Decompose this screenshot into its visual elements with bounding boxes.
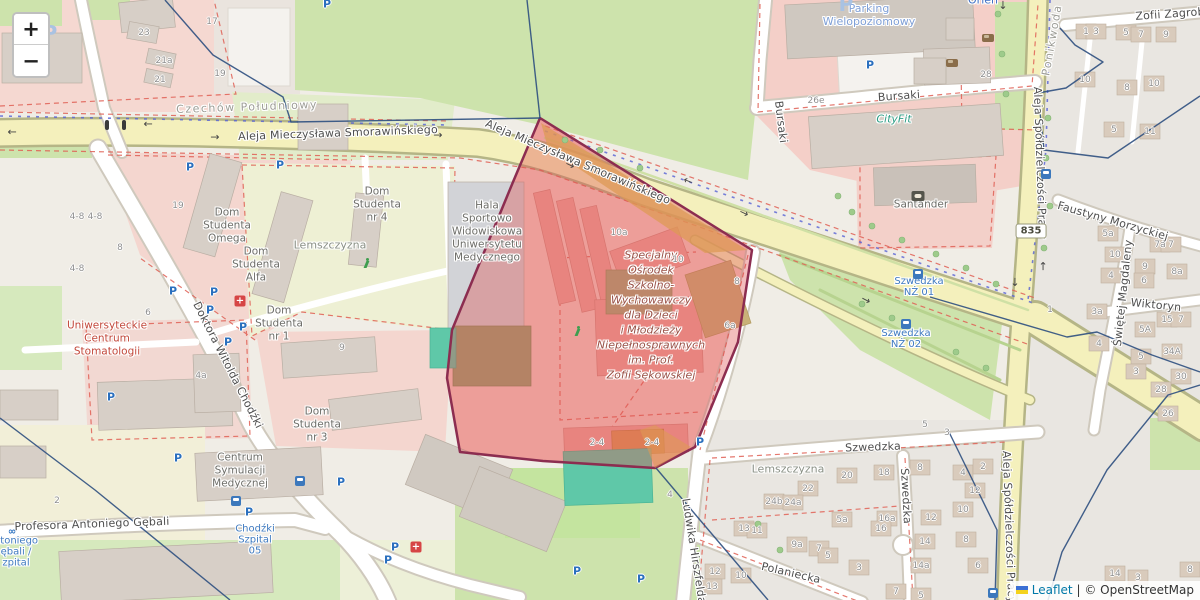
place-label-line: Parking xyxy=(849,2,890,15)
attribution-bar: Leaflet | © OpenStreetMap xyxy=(1010,581,1200,600)
street-label: Profesora Antoniego Gębali xyxy=(14,515,170,533)
house-number: 16a xyxy=(879,514,896,524)
place-label-line: nr 1 xyxy=(269,331,290,344)
house-number: 3 xyxy=(944,428,950,438)
house-number: 4 xyxy=(1108,271,1114,281)
place-label: DomStudentanr 3 xyxy=(293,406,341,445)
bus-stop-label-line: Szwedzka xyxy=(881,328,930,339)
house-number: 8 xyxy=(963,535,969,545)
house-number: 2 xyxy=(980,462,986,472)
parking-icon: P xyxy=(866,59,874,72)
house-number: 12 xyxy=(969,486,980,496)
parking-icon: P xyxy=(337,476,345,489)
house-number: 20 xyxy=(841,471,852,481)
arrow-icon: → xyxy=(210,132,219,143)
house-number: 28 xyxy=(980,70,991,80)
house-number: 13 xyxy=(706,582,717,592)
house-number: 15 xyxy=(1161,315,1172,325)
house-number: 28 xyxy=(1155,385,1166,395)
osm-link[interactable]: © OpenStreetMap xyxy=(1084,583,1194,597)
arrow-icon: → xyxy=(7,127,16,138)
place-label: DomStudentaAlfa xyxy=(232,246,280,285)
bus-stop-label-line: 05 xyxy=(249,546,262,557)
house-number: 7 xyxy=(893,587,899,597)
bus-stop-label-line: Szpital xyxy=(238,535,272,546)
house-number: 14 xyxy=(919,537,930,547)
house-number: 21a xyxy=(156,56,173,66)
arrow-icon: → xyxy=(737,206,750,220)
place-label: HalaSportowoWidowiskowaUniwersytetuMedyc… xyxy=(452,200,522,265)
place-label: Lemszczyzna xyxy=(294,239,367,252)
parking-icon: P xyxy=(210,286,218,299)
parking-icon: P xyxy=(276,159,284,172)
street-label: Wiktoryn xyxy=(1130,296,1182,314)
bus-stop-label-line: zpital xyxy=(2,558,29,569)
bus-icon xyxy=(988,588,998,598)
house-number: 26 xyxy=(1162,409,1173,419)
bus-stop-label: SzwedzkaNŻ 02 xyxy=(881,328,930,350)
street-label: Zofii Zagrob xyxy=(1135,5,1200,23)
place-label: DomStudentanr 4 xyxy=(353,186,401,225)
house-number: 24b xyxy=(765,497,782,507)
parking-icon: P xyxy=(224,336,232,349)
house-number: 10 xyxy=(735,571,746,581)
house-number: 34A xyxy=(1163,347,1181,357)
place-label-line: Sportowo xyxy=(462,213,512,226)
place-label: ParkingWielopoziomowy xyxy=(823,2,915,28)
house-number: 5 xyxy=(1138,352,1144,362)
house-number: 6 xyxy=(1141,276,1147,286)
parking-icon: P xyxy=(384,554,392,567)
house-number: 8 xyxy=(1187,565,1193,575)
house-number: 4a xyxy=(195,371,206,381)
arrow-icon: → xyxy=(998,0,1009,9)
place-label-line: Ośrodek xyxy=(628,263,674,278)
place-label-line: Studenta xyxy=(255,318,303,331)
place-label: Orlen xyxy=(968,0,998,7)
house-number: 2-4 xyxy=(645,438,660,448)
street-label: Bursaki xyxy=(772,100,790,144)
place-label-line: CityFit xyxy=(876,113,911,126)
attribution-separator: | xyxy=(1076,583,1080,597)
parking-icon: P xyxy=(573,565,581,578)
house-number: 7 xyxy=(1168,240,1174,250)
arrow-icon: → xyxy=(433,130,442,141)
house-number: 9 xyxy=(1163,30,1169,40)
house-number: 3 xyxy=(1133,367,1139,377)
place-label: SpecjalnyOśrodekSzkolno-Wychowawczydla D… xyxy=(597,248,705,383)
place-label-line: Symulacji xyxy=(215,465,266,478)
place-label-line: Lemszczyzna xyxy=(294,239,367,252)
house-number: 9 xyxy=(339,343,345,353)
zoom-control: + − xyxy=(12,12,50,78)
place-label-line: Omega xyxy=(208,233,246,246)
house-number: 10 xyxy=(957,505,968,515)
street-label: Aleja Mieczysława Smorawińskiego xyxy=(483,117,672,207)
house-number: 3a xyxy=(1091,307,1102,317)
bus-icon xyxy=(901,319,911,329)
atm-icon xyxy=(912,191,925,201)
bicycle-icon: ∞ xyxy=(8,527,16,538)
place-label-line: Uniwersytetu xyxy=(452,239,522,252)
car-icon xyxy=(946,59,958,67)
house-number: 6 xyxy=(975,561,981,571)
house-number: 6a xyxy=(724,321,735,331)
house-number: 12 xyxy=(925,513,936,523)
house-number: 1 xyxy=(1047,305,1053,315)
house-number: 23 xyxy=(138,28,149,38)
place-label-line: Medycznego xyxy=(454,252,520,265)
place-label-line: Dom xyxy=(244,246,269,259)
house-number: 8 xyxy=(117,243,123,253)
parking-icon: P xyxy=(323,0,331,11)
place-label-line: dla Dzieci xyxy=(624,308,677,323)
ukraine-flag-icon xyxy=(1016,586,1028,594)
house-number: 14a xyxy=(913,561,930,571)
place-label-line: Centrum xyxy=(84,333,130,346)
house-number: 13 xyxy=(738,524,749,534)
zoom-out-button[interactable]: − xyxy=(14,45,48,76)
street-label: Polaniecka xyxy=(760,560,822,586)
place-label: UniwersyteckieCentrumStomatologii xyxy=(67,320,147,359)
house-number: 4 xyxy=(960,468,966,478)
bus-stop-label-line: Chodźki xyxy=(235,524,275,535)
bus-icon xyxy=(913,269,923,279)
bus-stop-label: ntoniegoębali /zpital xyxy=(0,536,38,569)
bus-stop-label-line: ntoniego xyxy=(0,536,38,547)
house-number: 8 xyxy=(1124,83,1130,93)
place-label-line: i Młodzieży xyxy=(621,323,682,338)
house-number: 5 xyxy=(1123,28,1129,38)
bus-stop-label: ChodźkiSzpital05 xyxy=(235,524,275,557)
arrow-icon: → xyxy=(1010,277,1021,286)
place-label-line: Lemszczyzna xyxy=(752,463,825,476)
house-number: 2-4 xyxy=(590,438,605,448)
house-number: 4 xyxy=(667,490,673,500)
parking-icon: P xyxy=(637,573,645,586)
place-label-line: Centrum xyxy=(217,452,263,465)
place-label-line: Studenta xyxy=(293,419,341,432)
place-label-line: Studenta xyxy=(232,259,280,272)
house-number: 10 xyxy=(1148,79,1159,89)
place-label-line: Zofii Sękowskiej xyxy=(607,368,696,383)
parking-icon: P xyxy=(174,452,182,465)
bus-stop-label-line: ębali / xyxy=(1,547,32,558)
place-label-line: Widowiskowa xyxy=(452,226,522,239)
house-number: 8 xyxy=(917,463,923,473)
street-label: Szwedzka xyxy=(898,468,914,524)
hospital-icon: + xyxy=(411,542,422,553)
parking-icon: P xyxy=(839,0,854,16)
place-label-line: nr 3 xyxy=(307,432,328,445)
house-number: 14 xyxy=(1109,569,1120,579)
parking-icon: P xyxy=(239,321,247,334)
house-number: 10a xyxy=(611,228,628,238)
house-number: 5a xyxy=(1102,229,1113,239)
place-label-line: nr 4 xyxy=(367,212,388,225)
house-number: 19 xyxy=(214,69,225,79)
street-label: Czechów Południowy xyxy=(176,98,318,116)
zoom-in-button[interactable]: + xyxy=(14,14,48,45)
place-label: Lemszczyzna xyxy=(752,463,825,476)
house-number: 8 xyxy=(734,277,740,287)
arrow-icon: → xyxy=(143,119,152,130)
place-label-line: Wychowawczy xyxy=(611,293,691,308)
place-label: DomStudentanr 1 xyxy=(255,305,303,344)
house-number: 5a xyxy=(836,515,847,525)
place-label: CityFit xyxy=(876,113,911,126)
bus-stop-label-line: NŻ 01 xyxy=(904,287,934,298)
bus-icon xyxy=(231,496,241,506)
house-number: 5A xyxy=(1139,325,1151,335)
street-label: Ludwika Hirszfelda xyxy=(679,497,709,600)
house-number: 22 xyxy=(802,484,813,494)
parking-icon: P xyxy=(245,506,253,519)
house-number: 3 xyxy=(1093,27,1099,37)
place-label-line: Dom xyxy=(215,207,240,220)
arrow-icon: → xyxy=(1038,261,1049,270)
bus-stop-label-line: NŻ 02 xyxy=(891,339,921,350)
traffic-icon xyxy=(122,120,126,130)
house-number: 10 xyxy=(1109,250,1120,260)
house-number: 4 xyxy=(1096,339,1102,349)
place-label-line: Dom xyxy=(267,305,292,318)
leaflet-link[interactable]: Leaflet xyxy=(1032,583,1073,597)
car-icon xyxy=(982,34,994,42)
place-label-line: Niepełnosprawnych xyxy=(597,338,705,353)
house-number: 5 xyxy=(1111,125,1117,135)
arrow-icon: → xyxy=(859,293,872,307)
place-label-line: Specjalny xyxy=(624,248,677,263)
street-label: Aleja Spółdzielczości Pracy xyxy=(1031,86,1049,239)
traffic-icon xyxy=(105,120,109,130)
place-label: CentrumSymulacjiMedycznej xyxy=(212,452,268,491)
arrow-icon: → xyxy=(682,174,695,188)
house-number: 3 xyxy=(856,563,862,573)
house-number: 11 xyxy=(751,526,762,536)
street-label: Bursaki xyxy=(877,88,920,104)
place-label-line: Uniwersyteckie xyxy=(67,320,147,333)
house-number: 10 xyxy=(672,255,683,265)
house-number: 30 xyxy=(1175,372,1186,382)
house-number: 4-8 xyxy=(88,212,103,222)
house-number: 10 xyxy=(1079,75,1090,85)
parking-icon: P xyxy=(391,541,399,554)
place-label-line: Medycznej xyxy=(212,478,268,491)
street-label: Szwedzka xyxy=(845,440,901,455)
house-number: 7a xyxy=(1154,240,1165,250)
house-number: 18 xyxy=(878,468,889,478)
place-label-line: Dom xyxy=(305,406,330,419)
house-number: 11 xyxy=(1144,127,1155,137)
place-label-line: Szkolno- xyxy=(628,278,675,293)
map-labels-layer: Aleja Mieczysława SmorawińskiegoAleja Mi… xyxy=(0,0,1200,600)
place-label-line: Studenta xyxy=(353,199,401,212)
street-label: Ponikwoda xyxy=(1039,3,1064,76)
house-number: 4-8 xyxy=(70,264,85,274)
bus-icon xyxy=(1041,169,1051,179)
house-number: 4-8 xyxy=(70,212,85,222)
house-number: 8a xyxy=(1171,267,1182,277)
place-label-line: Dom xyxy=(365,186,390,199)
house-number: 7 xyxy=(1138,30,1144,40)
house-number: 26e xyxy=(808,96,825,106)
house-number: 5 xyxy=(825,551,831,561)
route-shield: 835 xyxy=(1016,224,1047,239)
parking-icon: P xyxy=(169,285,177,298)
house-number: 21 xyxy=(154,75,165,85)
street-label: Aleja Mieczysława Smorawińskiego xyxy=(238,123,438,143)
place-label-line: Wielopoziomowy xyxy=(823,15,915,28)
place-label-line: Studenta xyxy=(203,220,251,233)
parking-icon: P xyxy=(696,436,704,449)
house-number: 7 xyxy=(816,544,822,554)
house-number: 19 xyxy=(172,201,183,211)
house-number: 5 xyxy=(918,591,924,600)
house-number: 12 xyxy=(709,567,720,577)
map-canvas[interactable]: Aleja Mieczysława SmorawińskiegoAleja Mi… xyxy=(0,0,1200,600)
parking-icon: P xyxy=(107,391,115,404)
house-number: 1 xyxy=(1083,27,1089,37)
house-number: 2 xyxy=(54,496,60,506)
runner-icon xyxy=(363,258,371,268)
house-number: 17 xyxy=(206,17,217,27)
house-number: 6 xyxy=(145,308,151,318)
place-label-line: Hala xyxy=(475,200,499,213)
place-label-line: Orlen xyxy=(968,0,998,7)
place-label-line: im. Prof. xyxy=(628,353,674,368)
house-number: 9a xyxy=(791,540,802,550)
place-label-line: Alfa xyxy=(246,272,266,285)
house-number: 9 xyxy=(1142,262,1148,272)
parking-icon: P xyxy=(186,161,194,174)
runner-icon xyxy=(574,326,582,336)
place-label: DomStudentaOmega xyxy=(203,207,251,246)
house-number: 24a xyxy=(785,498,802,508)
street-label: Aleja Spółdzielczości Pracy xyxy=(1000,450,1018,600)
house-number: 16 xyxy=(875,524,886,534)
house-number: 5 xyxy=(922,420,928,430)
bus-icon xyxy=(295,476,305,486)
place-label-line: Stomatologii xyxy=(74,346,140,359)
house-number: 7 xyxy=(1178,315,1184,325)
pharmacy-icon: + xyxy=(235,296,246,307)
parking-icon: P xyxy=(206,304,214,317)
